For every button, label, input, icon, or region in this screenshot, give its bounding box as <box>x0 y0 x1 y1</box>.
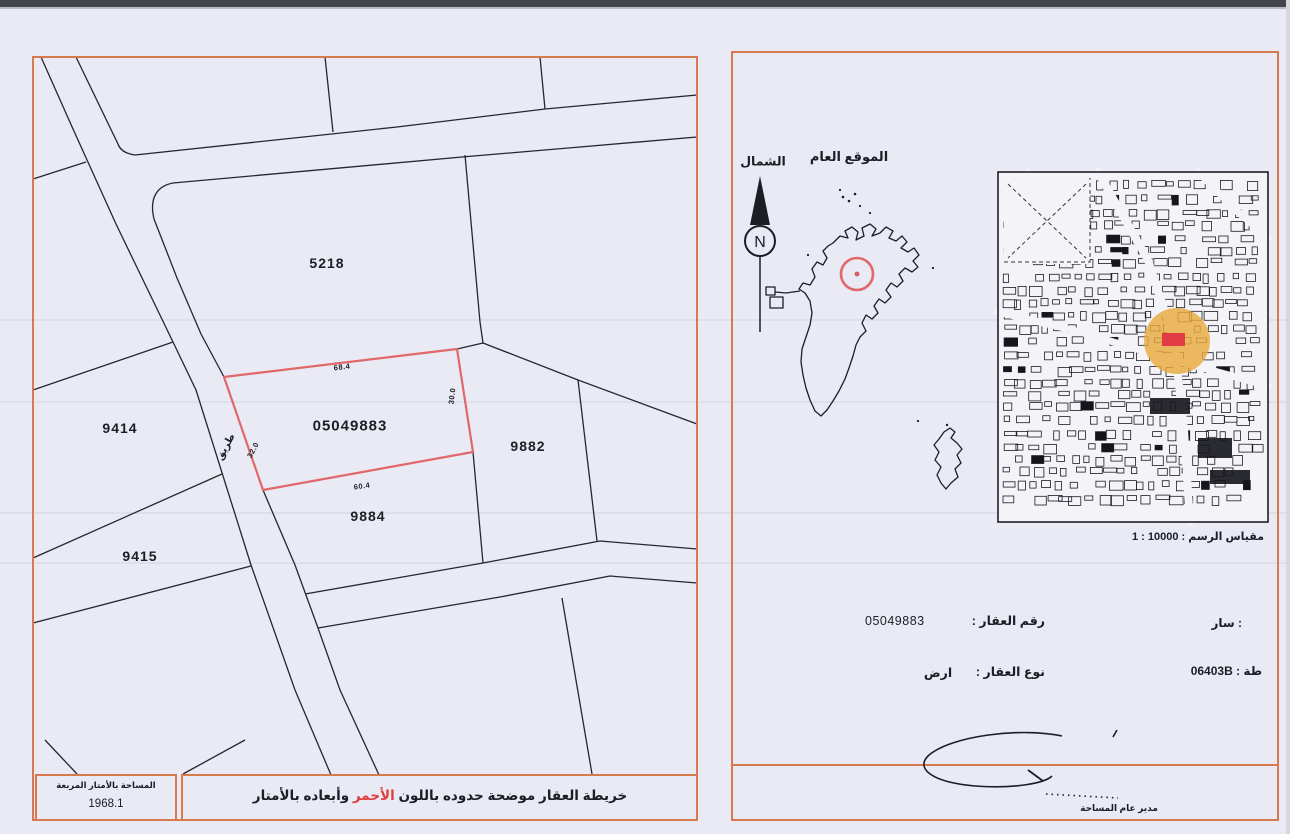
caption-pre: خريطة العقار موضحة حدوده باللون <box>395 788 627 803</box>
plot-label-5218: 5218 <box>309 255 344 271</box>
bahrain-map <box>766 224 962 489</box>
north-label: الشمال <box>740 154 786 169</box>
parcel-type-value: ارض <box>918 665 958 680</box>
parcel-type-label: نوع العقار : <box>963 664 1045 679</box>
scale-label: مقياس الرسم : 10000 : 1 <box>1104 530 1264 543</box>
caption-highlight-red: الأحمر <box>353 788 395 803</box>
location-title: الموقع العام <box>810 149 888 165</box>
caption-post: وأبعاده بالأمتار <box>253 788 353 803</box>
plot-label-main: 05049883 <box>313 418 388 435</box>
signature-title: مدير عام المساحة <box>1069 803 1169 814</box>
area-box-value: 1968.1 <box>40 798 172 810</box>
plot-label-9414: 9414 <box>102 420 137 436</box>
area-name-value: : سار <box>1198 616 1242 630</box>
location-circle <box>841 258 873 290</box>
small-islands <box>807 189 948 426</box>
plot-label-9415: 9415 <box>122 548 157 564</box>
map-caption: خريطة العقار موضحة حدوده باللون الأحمر و… <box>187 788 693 804</box>
street-map <box>998 172 1268 522</box>
cadastral-lines <box>33 57 697 775</box>
left-panel-border <box>33 57 697 820</box>
parcel-number-label: رقم العقار : <box>963 613 1045 628</box>
plot-label-9884: 9884 <box>350 508 385 524</box>
parcel-number-value: 05049883 <box>865 614 953 628</box>
area-box-title: المساحة بالأمتار المربعة <box>40 780 172 791</box>
plot-label-9882: 9882 <box>510 438 545 454</box>
map-artwork: N <box>0 0 1290 834</box>
scanned-survey-document: { "document_type": "cadastral-survey-map… <box>0 0 1290 834</box>
plot-marker <box>1162 333 1185 346</box>
compass-letter: N <box>754 234 766 251</box>
sheet-ref-value: طة : 06403B <box>1176 664 1262 678</box>
